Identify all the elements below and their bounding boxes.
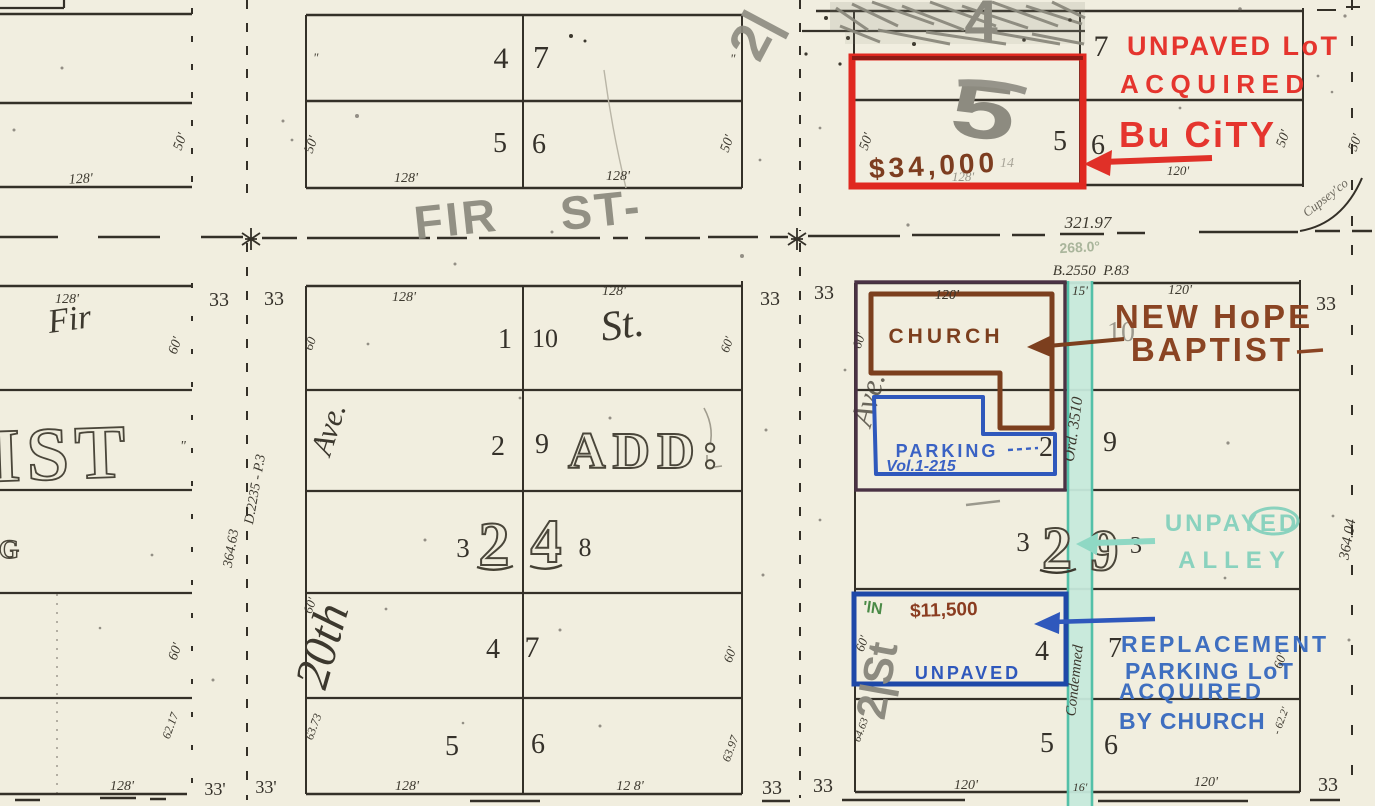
svg-text:BAPTIST: BAPTIST (1131, 331, 1293, 368)
svg-text:120': 120' (935, 288, 960, 303)
svg-text:6: 6 (1104, 730, 1118, 761)
svg-text:128': 128' (602, 284, 627, 299)
svg-text:5: 5 (1053, 126, 1067, 157)
svg-text:4: 4 (486, 634, 500, 665)
svg-text:": " (180, 439, 186, 454)
svg-text:33: 33 (762, 777, 782, 799)
svg-text:120': 120' (954, 778, 979, 793)
svg-text:UNPAVED: UNPAVED (915, 663, 1021, 683)
svg-text:4: 4 (494, 42, 509, 75)
svg-text:33: 33 (1318, 774, 1338, 796)
svg-text:128': 128' (392, 290, 417, 305)
svg-text:120': 120' (1167, 163, 1190, 178)
svg-text:321.97: 321.97 (1064, 213, 1113, 232)
svg-text:128': 128' (395, 779, 420, 794)
svg-text:33: 33 (760, 288, 780, 310)
svg-text:ACQUIRED: ACQUIRED (1119, 679, 1264, 704)
svg-text:128': 128' (68, 171, 94, 187)
svg-text:120': 120' (1168, 283, 1193, 298)
svg-text:5: 5 (493, 128, 507, 159)
svg-text:33: 33 (1316, 293, 1336, 315)
svg-text:FIR: FIR (411, 188, 501, 250)
svg-text:ACQUIRED: ACQUIRED (1120, 69, 1311, 99)
svg-text:7: 7 (1108, 633, 1122, 664)
svg-text:6: 6 (532, 129, 546, 160)
svg-text:14: 14 (1000, 156, 1014, 171)
svg-text:33: 33 (264, 288, 284, 310)
svg-text:33: 33 (813, 775, 833, 797)
svg-text:16': 16' (1073, 780, 1088, 794)
svg-text:33: 33 (814, 282, 834, 304)
svg-text:9: 9 (535, 429, 549, 460)
svg-text:2: 2 (1039, 432, 1053, 463)
svg-text:'lN: 'lN (862, 599, 884, 619)
svg-text:33: 33 (209, 289, 229, 311)
svg-text:128': 128' (394, 171, 419, 186)
svg-text:G: G (0, 535, 19, 564)
svg-text:Fir: Fir (44, 298, 94, 341)
svg-text:15': 15' (1072, 283, 1088, 298)
svg-text:NEW HoPE: NEW HoPE (1115, 298, 1313, 335)
svg-text:ST-: ST- (558, 179, 645, 240)
svg-text:7: 7 (1094, 30, 1109, 63)
svg-text:$11,500: $11,500 (910, 599, 978, 622)
svg-text:2: 2 (491, 431, 505, 462)
svg-text:3: 3 (1016, 527, 1030, 557)
svg-text:BY CHURCH: BY CHURCH (1119, 708, 1266, 734)
svg-text:9: 9 (1103, 427, 1117, 458)
svg-text:CHURCH: CHURCH (889, 325, 1004, 348)
svg-text:6: 6 (531, 729, 545, 760)
svg-text:IST: IST (0, 410, 133, 499)
svg-text:12 8': 12 8' (616, 779, 645, 794)
svg-text:ADD:: ADD: (568, 423, 726, 480)
svg-text:5: 5 (445, 731, 459, 762)
svg-text:33': 33' (255, 777, 276, 797)
svg-text:5: 5 (1040, 728, 1054, 759)
svg-text:": " (730, 51, 736, 66)
svg-text:8: 8 (579, 533, 592, 562)
svg-text:B.2550 P.83: B.2550 P.83 (1053, 263, 1129, 279)
svg-text:REPLACEMENT: REPLACEMENT (1121, 631, 1329, 657)
svg-text:5: 5 (946, 63, 1021, 159)
svg-text:4: 4 (964, 0, 998, 55)
svg-text:7: 7 (533, 39, 549, 75)
svg-text:7: 7 (525, 631, 540, 664)
svg-text:UNPAVED LoT: UNPAVED LoT (1127, 31, 1340, 61)
svg-text:4: 4 (1035, 636, 1049, 667)
svg-text:268.0°: 268.0° (1059, 238, 1100, 256)
svg-text:120': 120' (1194, 775, 1219, 790)
svg-text:3: 3 (1130, 533, 1142, 559)
svg-text:": " (316, 437, 322, 452)
svg-text:10: 10 (532, 324, 558, 353)
svg-text:1: 1 (498, 324, 512, 355)
svg-text:128': 128' (110, 779, 135, 794)
svg-text:33': 33' (204, 779, 225, 799)
svg-text:3: 3 (456, 533, 470, 563)
svg-text:St.: St. (598, 299, 647, 351)
svg-text:ALLEY: ALLEY (1178, 547, 1292, 574)
svg-text:Bu CiTY: Bu CiTY (1119, 114, 1277, 155)
svg-text:": " (313, 50, 319, 65)
svg-text:Vol.1-215: Vol.1-215 (886, 458, 957, 475)
